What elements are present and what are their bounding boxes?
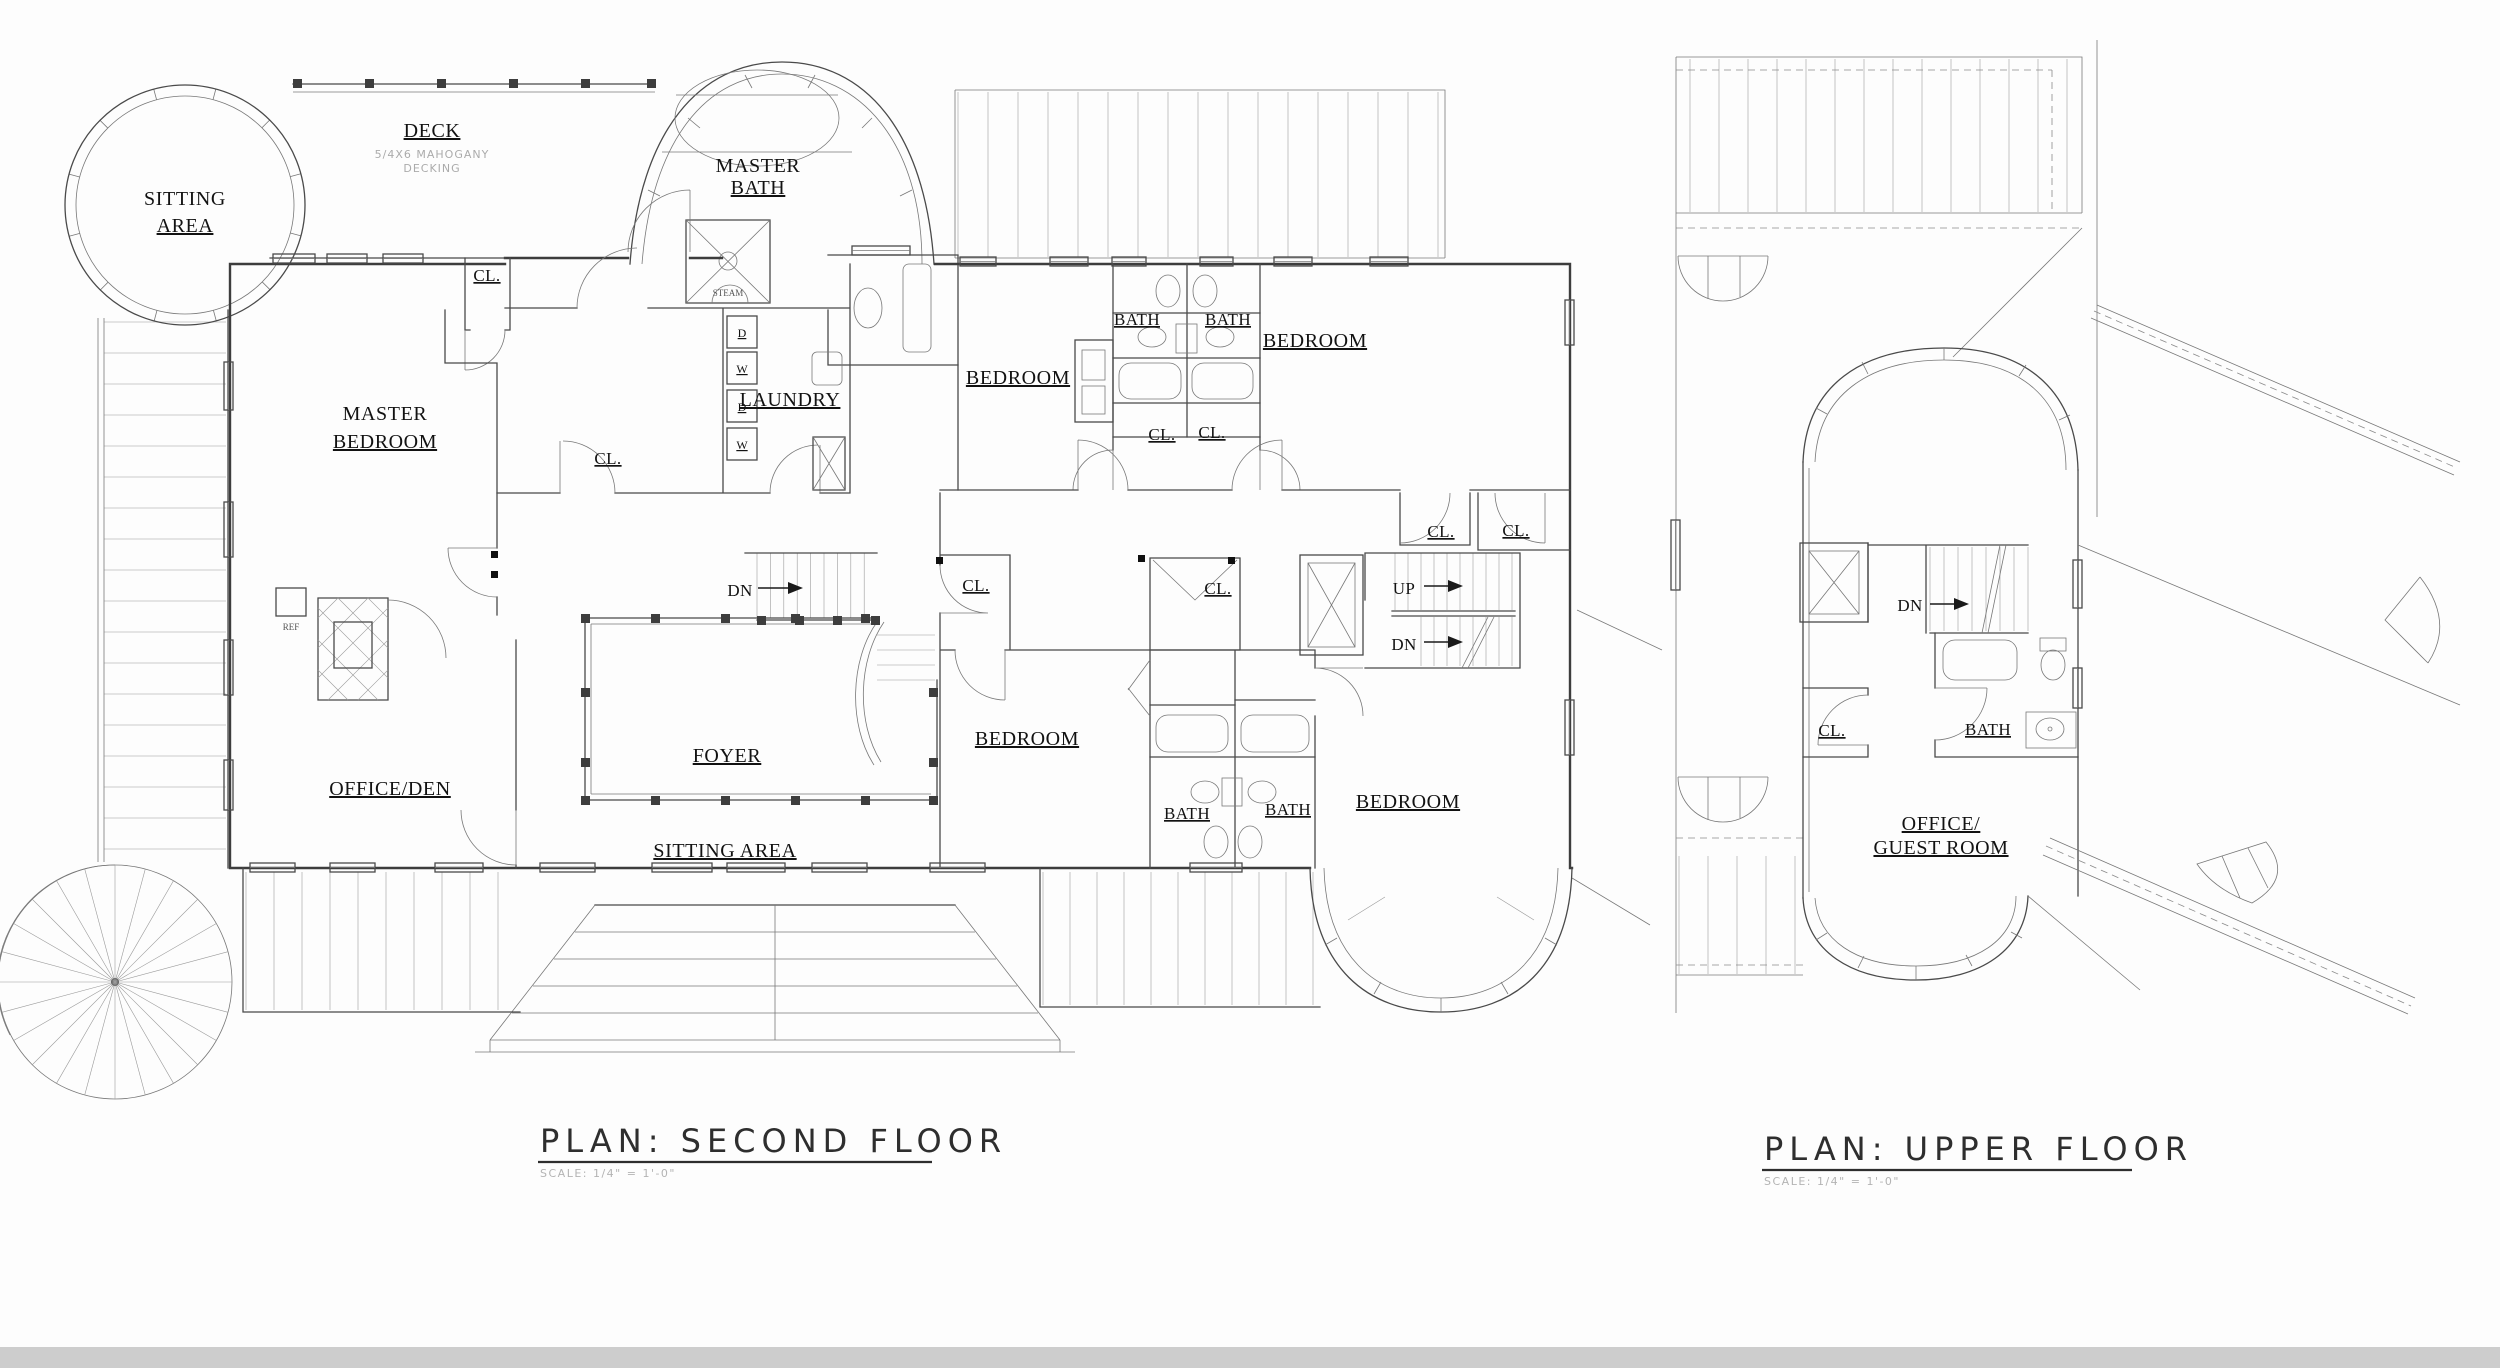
deck-railing-north bbox=[293, 84, 655, 92]
room-label-master-bedroom-1: MASTER bbox=[343, 403, 428, 425]
left-deck bbox=[98, 310, 1320, 1012]
steam-shower-label: STEAM bbox=[713, 288, 744, 298]
dryer-label: D bbox=[738, 326, 747, 340]
plan-scale-second-floor: SCALE: 1/4" = 1'-0" bbox=[540, 1167, 676, 1180]
exterior-walls bbox=[230, 258, 1572, 868]
south-steps bbox=[475, 905, 1075, 1052]
room-label-bath: BATH bbox=[1164, 804, 1210, 823]
room-label-office-guest-2: GUEST ROOM bbox=[1873, 837, 2008, 859]
room-label-master-bath-1: MASTER bbox=[716, 155, 801, 177]
closet-label: CL. bbox=[473, 266, 500, 285]
stair-down-label: DN bbox=[1897, 596, 1922, 615]
floor-plan-drawing: SITTING AREA DECK 5/4X6 MAHOGANY DECKING… bbox=[0, 0, 2500, 1368]
closet-label: CL. bbox=[594, 449, 621, 468]
floor-plan-sheet: SITTING AREA DECK 5/4X6 MAHOGANY DECKING… bbox=[0, 0, 2500, 1368]
closet-label: CL. bbox=[1818, 721, 1845, 740]
plan-title-upper-floor: PLAN: UPPER FLOOR bbox=[1764, 1130, 2193, 1168]
stair-down-foyer bbox=[745, 553, 884, 765]
room-label-bath: BATH bbox=[1205, 310, 1251, 329]
plan-title-second-floor: PLAN: SECOND FLOOR bbox=[540, 1122, 1007, 1160]
room-label-bath: BATH bbox=[1965, 720, 2011, 739]
room-label-bedroom: BEDROOM bbox=[1356, 791, 1460, 813]
deck-material-note-1: 5/4X6 MAHOGANY bbox=[375, 148, 490, 161]
room-label-office-guest-1: OFFICE/ bbox=[1902, 813, 1981, 835]
deck-material-note-2: DECKING bbox=[403, 162, 460, 175]
corridor-walls bbox=[940, 440, 1570, 550]
closet-label: CL. bbox=[962, 576, 989, 595]
room-label-sitting-area: SITTING AREA bbox=[653, 840, 796, 862]
plan-scale-upper-floor: SCALE: 1/4" = 1'-0" bbox=[1764, 1175, 1900, 1188]
stair-down-label: DN bbox=[727, 581, 752, 600]
room-label-bedroom: BEDROOM bbox=[966, 367, 1070, 389]
dryer-label: D bbox=[738, 400, 747, 414]
master-bath-turret bbox=[630, 62, 958, 365]
plan-upper-floor: DN CL. BATH OFFICE/ GUEST ROOM PLAN: UPP… bbox=[1676, 40, 2460, 1188]
room-label-foyer: FOYER bbox=[693, 745, 762, 767]
bath-block-bottom bbox=[1128, 650, 1363, 868]
washer-label: W bbox=[736, 362, 748, 376]
fireplace-wetbar bbox=[276, 588, 446, 700]
stair-down-label: DN bbox=[1391, 635, 1416, 654]
closet-label: CL. bbox=[1204, 579, 1231, 598]
closet-label: CL. bbox=[1502, 521, 1529, 540]
wall-end-dots bbox=[491, 551, 1235, 578]
roof-plane-northeast bbox=[955, 90, 1445, 258]
room-label-master-bedroom-2: BEDROOM bbox=[333, 431, 437, 453]
room-label-master-bath-2: BATH bbox=[731, 177, 786, 199]
room-label-laundry: LAUNDRY bbox=[740, 389, 841, 411]
room-label-sitting-turret-2: AREA bbox=[157, 215, 214, 237]
closet-label: CL. bbox=[1427, 522, 1454, 541]
foyer-railing bbox=[585, 618, 937, 800]
room-label-bedroom: BEDROOM bbox=[1263, 330, 1367, 352]
room-label-deck: DECK bbox=[404, 120, 461, 142]
upper-elevator-stair bbox=[1800, 543, 2028, 633]
closet-label: CL. bbox=[1198, 423, 1225, 442]
plan-second-floor: SITTING AREA DECK 5/4X6 MAHOGANY DECKING… bbox=[0, 59, 2067, 1180]
room-label-office-den: OFFICE/DEN bbox=[329, 778, 451, 800]
closet-label: CL. bbox=[1148, 425, 1175, 444]
office-walls bbox=[461, 640, 516, 868]
upper-roof-north bbox=[1676, 40, 2097, 517]
room-label-bath: BATH bbox=[1114, 310, 1160, 329]
sheet-edge-strip bbox=[0, 1347, 2500, 1368]
interior-walls-west bbox=[445, 248, 850, 615]
refrigerator-label: REF bbox=[283, 622, 300, 632]
room-label-bath: BATH bbox=[1265, 800, 1311, 819]
washer-label: W bbox=[736, 438, 748, 452]
office-guest-turret bbox=[1803, 348, 2078, 980]
deck-door bbox=[628, 190, 690, 252]
room-label-sitting-turret-1: SITTING bbox=[144, 188, 226, 210]
upper-roof-west bbox=[1676, 213, 1803, 1013]
room-label-bedroom: BEDROOM bbox=[975, 728, 1079, 750]
spiral-stair bbox=[0, 865, 232, 1099]
upper-roof-east bbox=[2028, 305, 2460, 1014]
stair-up-label: UP bbox=[1393, 579, 1416, 598]
upper-stair-arrow bbox=[1930, 598, 1969, 610]
